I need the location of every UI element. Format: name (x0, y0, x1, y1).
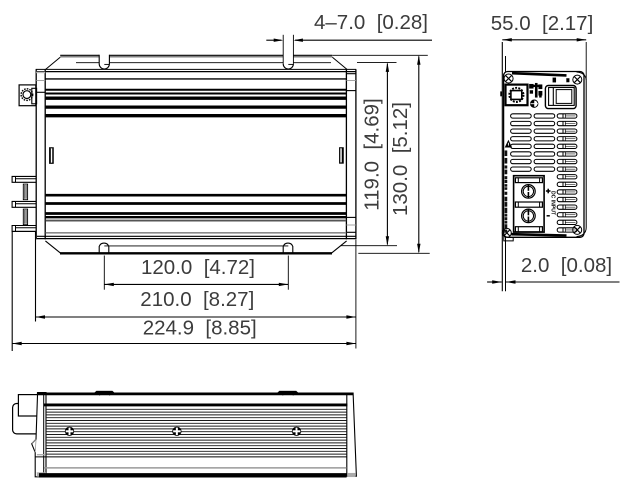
svg-text:4–7.0 [0.28]: 4–7.0 [0.28] (314, 11, 428, 34)
svg-text:224.9 [8.85]: 224.9 [8.85] (143, 317, 257, 340)
svg-text:55.0 [2.17]: 55.0 [2.17] (491, 12, 594, 35)
svg-text:120.0 [4.72]: 120.0 [4.72] (141, 256, 255, 279)
svg-text:119.0 [4.69]: 119.0 [4.69] (360, 98, 383, 210)
svg-text:210.0 [8.27]: 210.0 [8.27] (140, 288, 254, 311)
svg-text:2.0 [0.08]: 2.0 [0.08] (521, 254, 612, 277)
svg-text:DC INPUT: DC INPUT (549, 191, 555, 216)
svg-text:130.0 [5.12]: 130.0 [5.12] (389, 102, 412, 216)
